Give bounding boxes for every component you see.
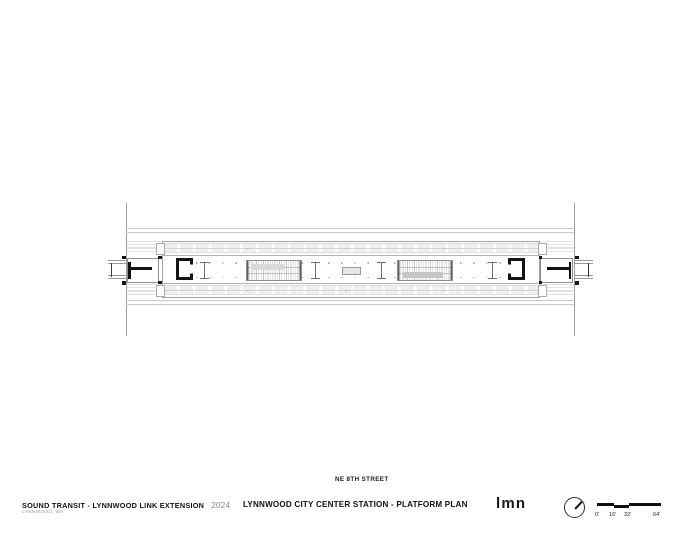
scale-bar: 0' 16' 32' 64' <box>597 503 661 519</box>
stair-wall-west <box>128 262 131 279</box>
north-arrow-needle <box>574 501 582 509</box>
end-wall-tick-east <box>588 263 589 277</box>
scale-segment <box>614 505 629 508</box>
escalator-tread-shading <box>403 272 443 278</box>
street-line-east <box>574 203 575 336</box>
scale-label-0: 0' <box>595 512 599 518</box>
scale-segment <box>629 503 662 506</box>
track-band-circle-marks <box>163 242 540 255</box>
corner-mark <box>575 256 579 260</box>
guideway-edge-line <box>126 232 574 233</box>
escalator-bank-east <box>397 260 453 281</box>
platform-corner-mark <box>158 281 162 285</box>
column-symbol <box>311 262 320 279</box>
stair-run-west <box>130 267 152 271</box>
drawing-year: 2024 <box>211 500 230 510</box>
platform-dot-grid-north <box>196 262 505 264</box>
north-arrow-icon <box>564 497 585 518</box>
platform-corner-mark <box>539 281 543 285</box>
column-symbol <box>200 262 209 279</box>
scale-label-64: 64' <box>653 512 660 518</box>
track-band-north <box>163 242 540 256</box>
corner-mark <box>122 281 126 285</box>
elevator-west <box>176 258 193 280</box>
scale-label-16: 16' <box>609 512 616 518</box>
stair-wall-east <box>569 262 572 279</box>
platform-corner-mark <box>539 256 543 260</box>
elevator-door-gap <box>190 265 194 274</box>
escalator-bank-west <box>246 260 302 281</box>
guideway-edge-line <box>126 304 574 305</box>
column-symbol <box>488 262 497 279</box>
scale-segment <box>597 503 614 506</box>
scale-label-32: 32' <box>624 512 631 518</box>
track-band-circle-marks <box>163 284 540 297</box>
guideway-edge-line <box>126 300 574 301</box>
drawing-sheet: NE 8TH STREET SOUND TRANSIT - LYNNWOOD L… <box>0 0 700 540</box>
corner-mark <box>575 281 579 285</box>
guideway-stub-lines <box>574 275 593 280</box>
guideway-edge-line <box>126 228 574 229</box>
project-title: SOUND TRANSIT - LYNNWOOD LINK EXTENSION <box>22 501 204 510</box>
platform-dot-grid-south <box>196 277 505 279</box>
elevator-east <box>508 258 525 280</box>
stair-run-east <box>547 267 569 271</box>
guideway-stub-lines <box>574 260 593 265</box>
project-location: LYNNWOOD, WA <box>22 510 64 515</box>
platform-corner-mark <box>158 256 162 260</box>
corner-mark <box>122 256 126 260</box>
stair-structure-west <box>127 258 160 284</box>
track-band-south <box>163 283 540 297</box>
street-label: NE 8TH STREET <box>335 476 389 483</box>
guideway-end-cap <box>538 285 547 297</box>
escalator-tread-shading <box>251 264 284 270</box>
center-platform-fixture <box>342 267 361 275</box>
sheet-title: LYNNWOOD CITY CENTER STATION - PLATFORM … <box>243 500 468 509</box>
elevator-door-gap <box>507 265 511 274</box>
guideway-end-cap <box>156 285 165 297</box>
guideway-end-cap <box>156 243 165 255</box>
firm-logo: LMN <box>496 496 526 511</box>
guideway-end-cap <box>538 243 547 255</box>
end-wall-tick-west <box>111 263 112 277</box>
column-symbol <box>377 262 386 279</box>
